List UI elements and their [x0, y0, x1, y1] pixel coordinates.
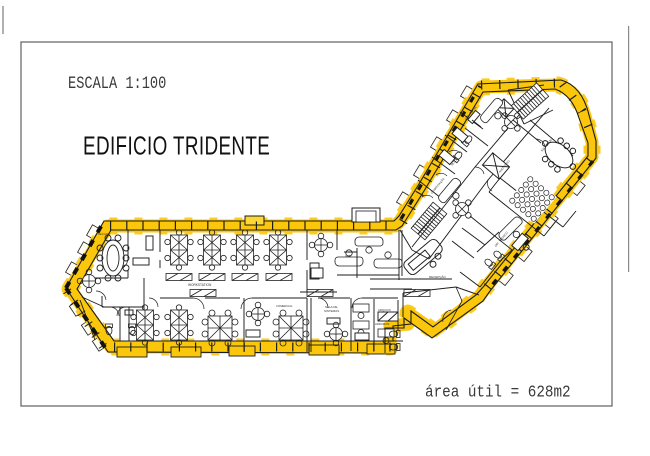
svg-text:SISTEMAS: SISTEMAS	[324, 309, 339, 313]
svg-text:DECANO: DECANO	[98, 232, 111, 236]
svg-text:GAB.: GAB.	[345, 254, 352, 258]
svg-text:ARQUIVO: ARQUIVO	[378, 308, 392, 312]
svg-text:WORKSTATION: WORKSTATION	[188, 283, 212, 287]
svg-text:área útil = 628m2: área útil = 628m2	[425, 382, 571, 401]
svg-text:ARRUMOS: ARRUMOS	[375, 322, 389, 326]
svg-text:ESCALA 1:100: ESCALA 1:100	[68, 74, 166, 94]
svg-text:EDIFICIO TRIDENTE: EDIFICIO TRIDENTE	[83, 132, 270, 160]
svg-text:COMERCIAL: COMERCIAL	[276, 304, 293, 308]
svg-text:RECEPÇÃO: RECEPÇÃO	[429, 274, 447, 279]
